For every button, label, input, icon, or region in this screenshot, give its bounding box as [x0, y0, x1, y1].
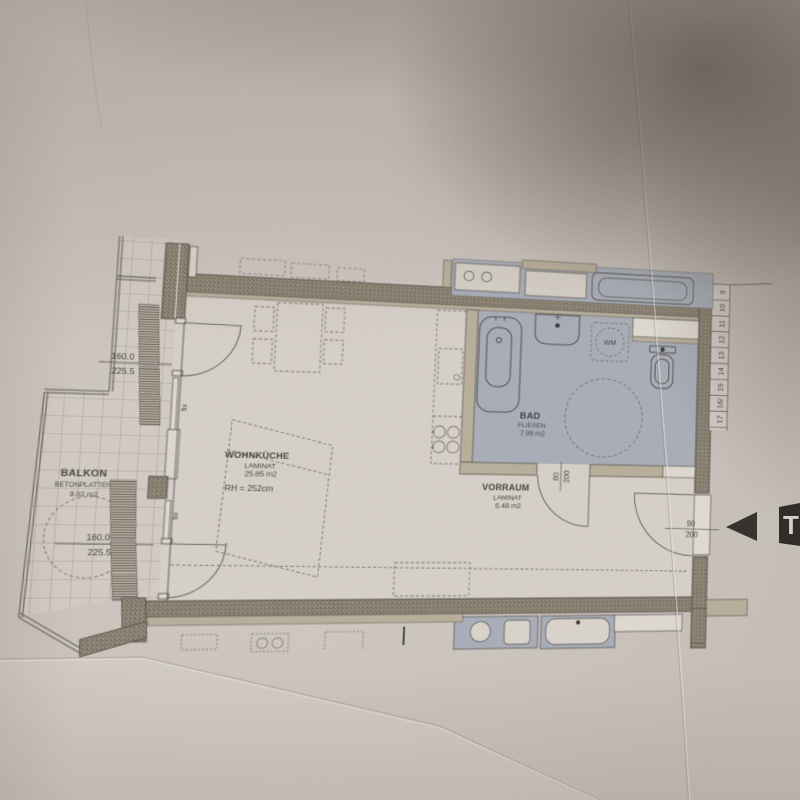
svg-text:T: T: [783, 510, 799, 540]
